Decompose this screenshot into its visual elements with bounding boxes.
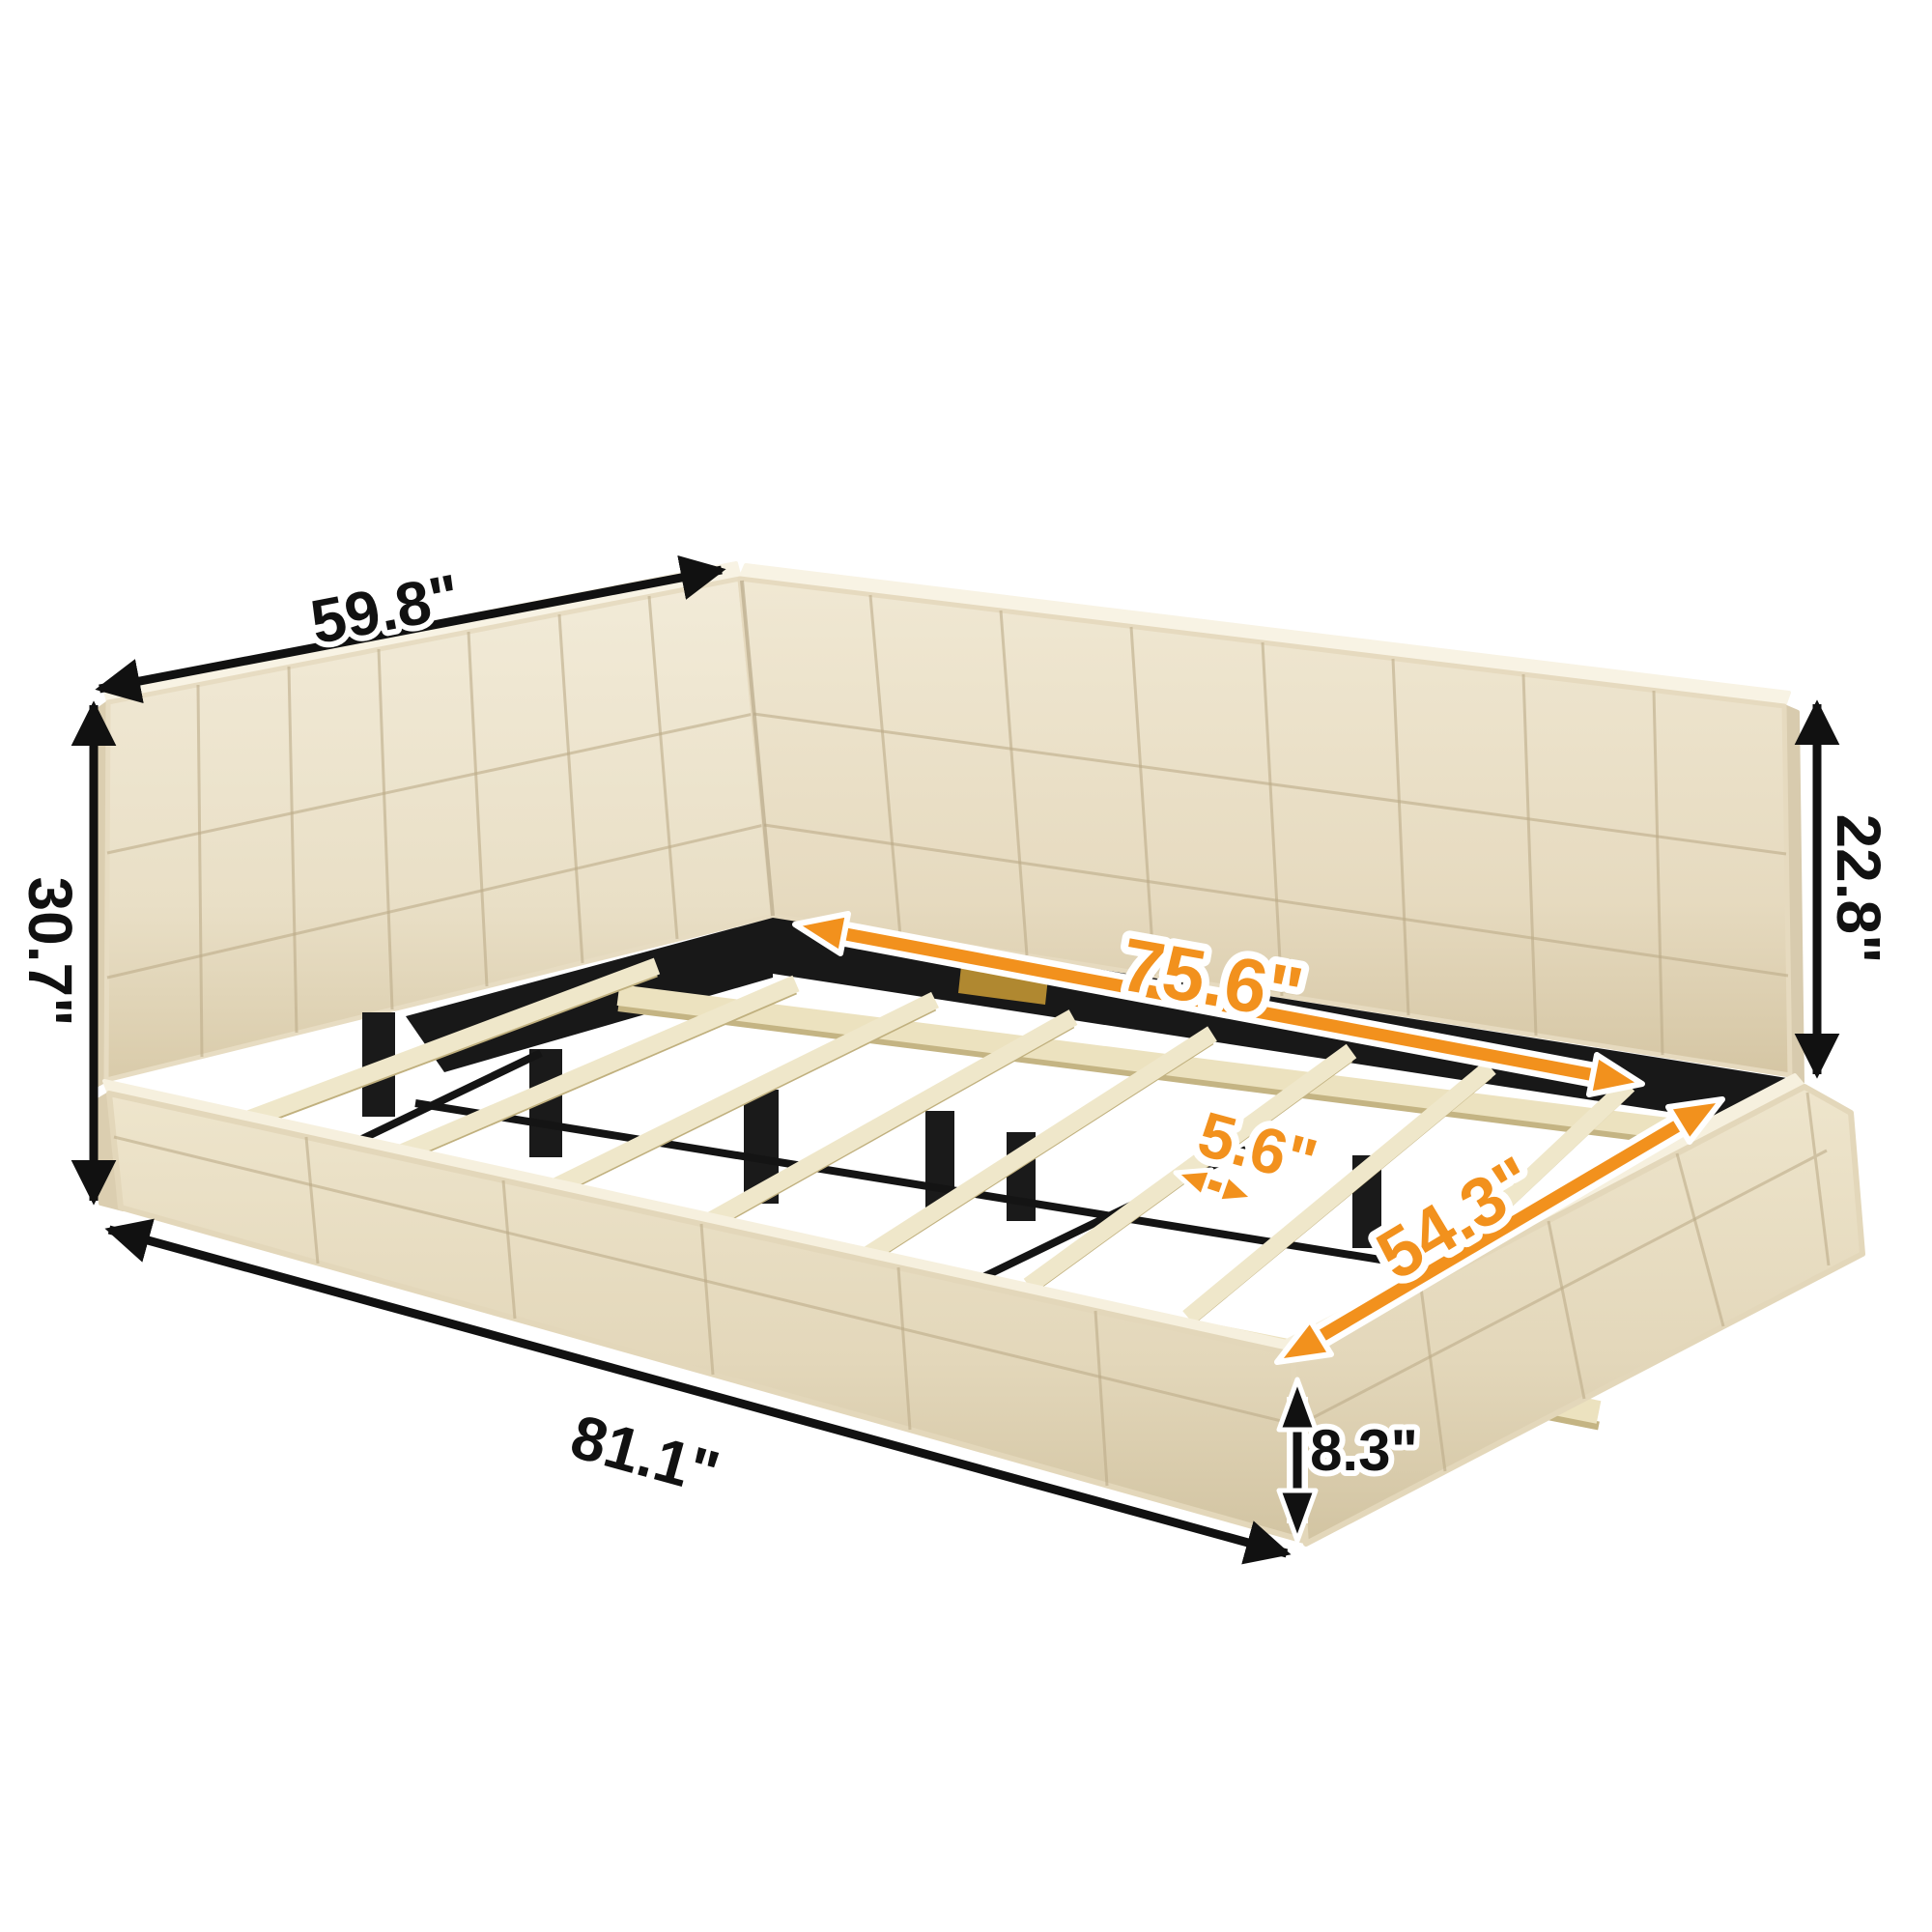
diagram-canvas: SIZE: INCH xyxy=(0,0,1932,1932)
bed-diagram: 59.8" 30.7" 22.8" 81.1" 8.3" 75.6" 5.6" … xyxy=(0,0,1932,1932)
label-headboard-height: 30.7" xyxy=(15,877,85,1027)
label-back-wall-height: 22.8" xyxy=(1824,814,1893,964)
label-base-height: 8.3" xyxy=(1310,1418,1418,1483)
